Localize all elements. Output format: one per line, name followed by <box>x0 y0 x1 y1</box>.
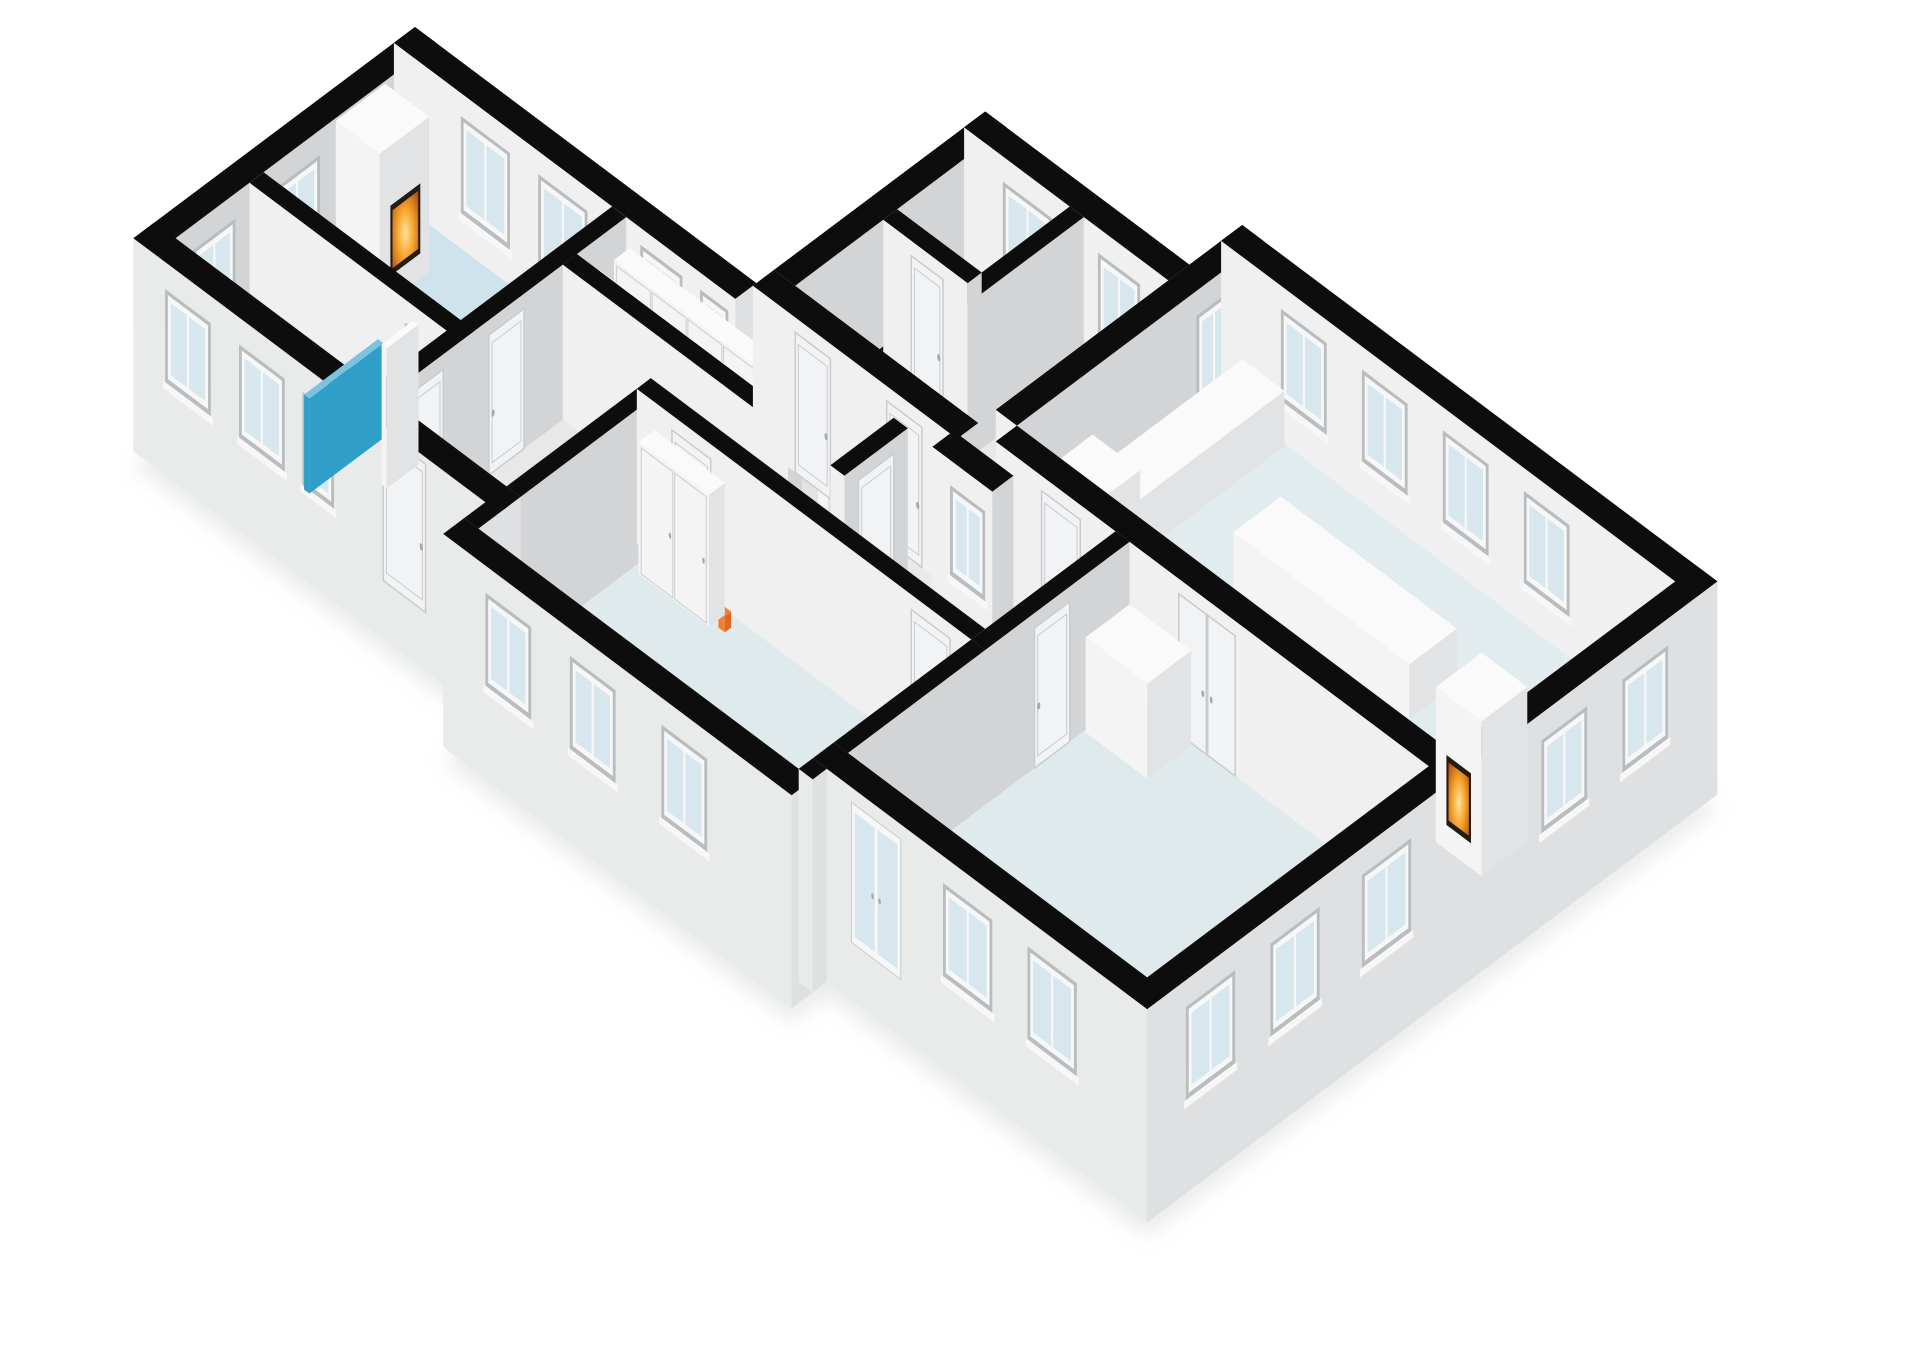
floor-plan-3d <box>0 0 1920 1358</box>
door-leaf-bathroom <box>382 321 419 489</box>
fireplace-kitchen <box>1436 653 1528 877</box>
floor-plan-stage <box>0 0 1920 1358</box>
wall-jog-bedrooms <box>799 758 827 992</box>
